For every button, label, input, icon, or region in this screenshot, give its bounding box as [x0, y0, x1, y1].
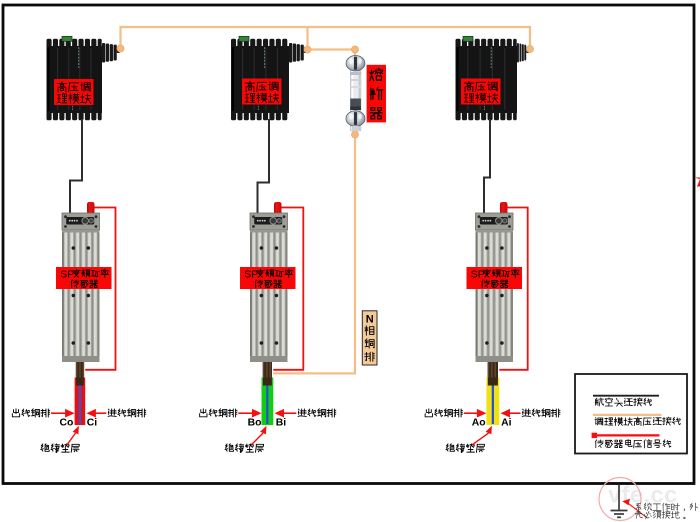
svg-text:SP: SP — [471, 268, 485, 280]
svg-text:SP: SP — [60, 268, 74, 280]
svg-text:SP: SP — [244, 268, 258, 280]
svg-text:Bi: Bi — [276, 417, 287, 428]
svg-text:Ai: Ai — [501, 417, 512, 428]
svg-text:Ao: Ao — [472, 417, 486, 428]
svg-text:Ci: Ci — [87, 417, 98, 428]
svg-text:N: N — [366, 314, 374, 326]
svg-text:Bo: Bo — [248, 417, 262, 428]
svg-text:Co: Co — [59, 417, 73, 428]
